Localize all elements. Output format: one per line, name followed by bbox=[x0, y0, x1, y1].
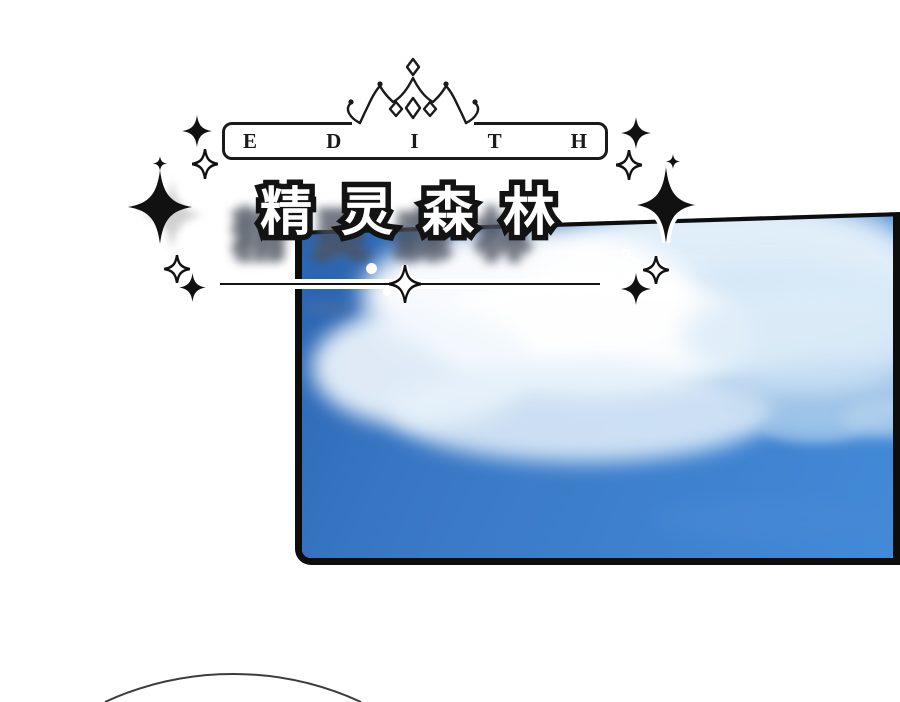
sparkle-outlined-icon bbox=[192, 149, 218, 179]
logo-letter: E bbox=[243, 131, 257, 152]
sparkle-filled-icon bbox=[179, 273, 206, 302]
logo-letter: D bbox=[326, 131, 341, 152]
sparkle-filled-icon bbox=[637, 167, 695, 243]
cloud-wisp bbox=[652, 497, 892, 542]
sparkle-filled-icon bbox=[621, 117, 651, 149]
cloud bbox=[392, 362, 772, 462]
sparkle-filled-icon bbox=[621, 273, 651, 305]
divider-diamond-icon bbox=[389, 265, 421, 303]
sparkle-filled-icon bbox=[153, 156, 167, 171]
logo-letter: H bbox=[571, 131, 587, 152]
comic-title-page: E D I T H bbox=[0, 0, 900, 702]
chapter-title: 精灵森林 bbox=[260, 186, 680, 241]
crown-icon bbox=[340, 52, 486, 130]
logo-letter: I bbox=[410, 131, 418, 152]
sparkle-filled-icon bbox=[128, 170, 192, 244]
sparkle-filled-icon bbox=[182, 115, 212, 147]
next-panel-arc bbox=[60, 660, 440, 702]
logo-letter: T bbox=[488, 131, 502, 152]
dark-cloud-wisp bbox=[302, 300, 356, 316]
